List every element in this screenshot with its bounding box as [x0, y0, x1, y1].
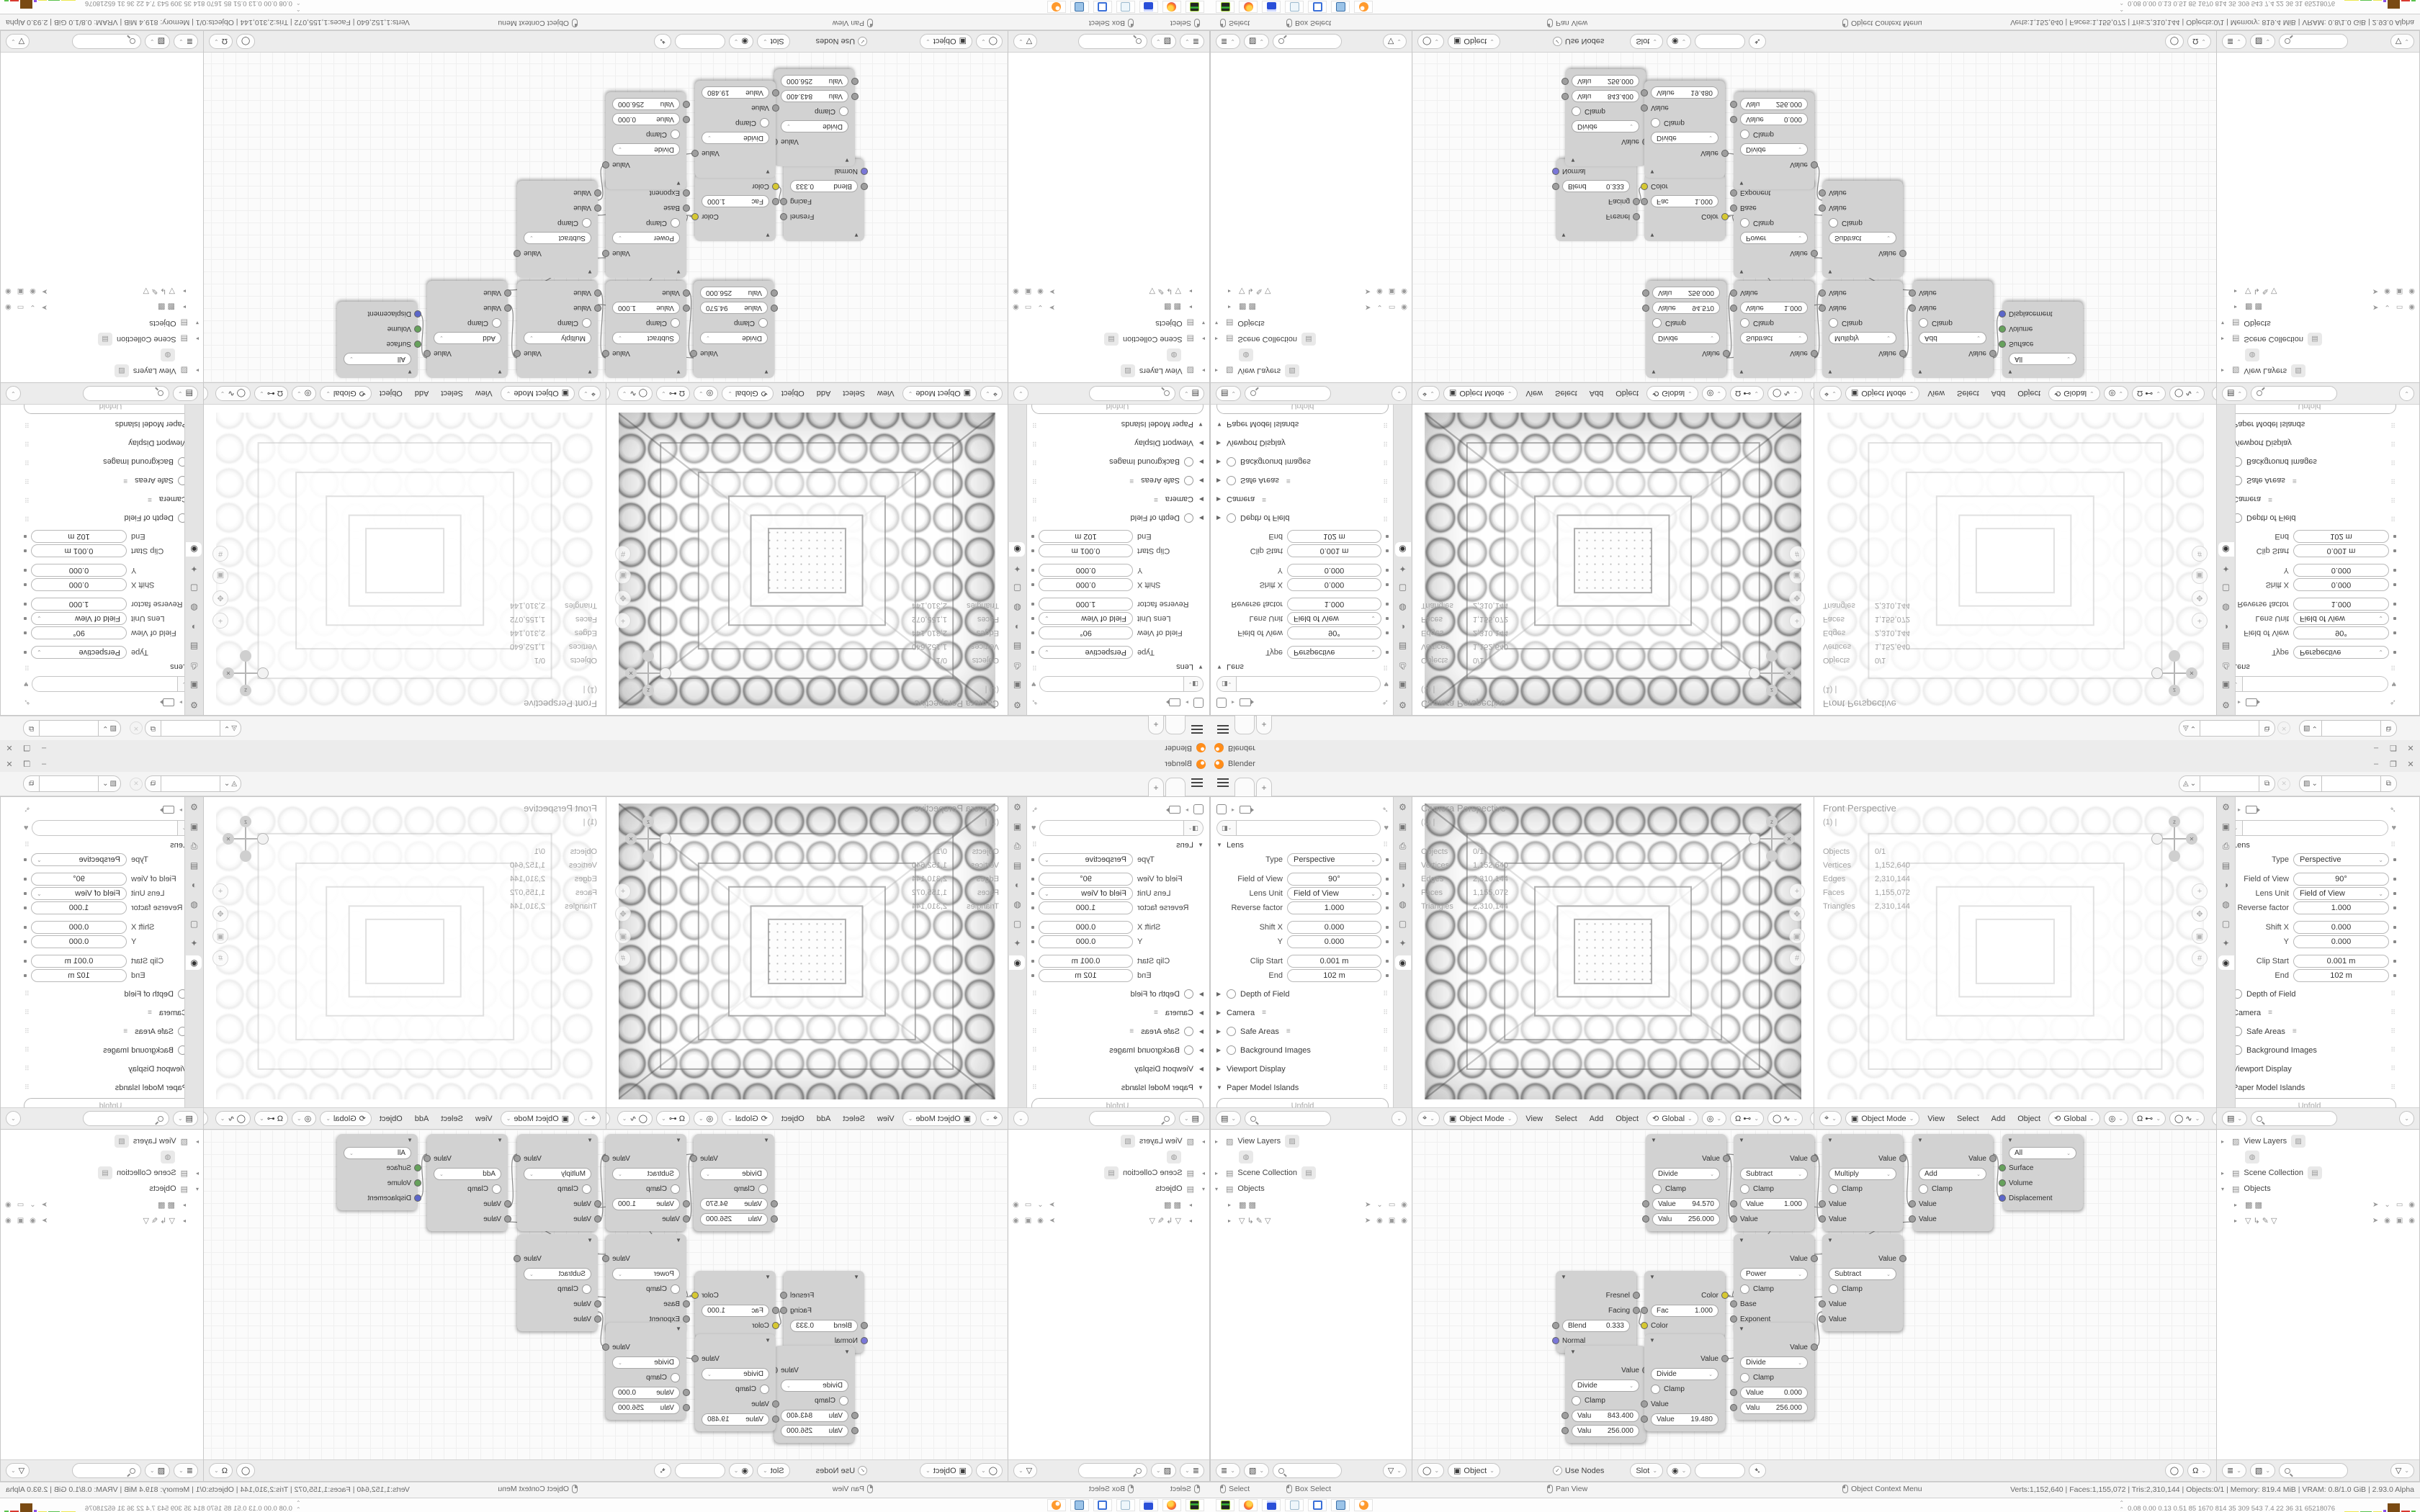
- camera-name-field[interactable]: [1039, 820, 1183, 836]
- proportional-icon[interactable]: ◯: [2165, 1463, 2184, 1478]
- pivot-dropdown[interactable]: ◎⌄: [292, 1111, 316, 1126]
- gizmo-z-axis[interactable]: z: [1766, 685, 1778, 696]
- restriction-toggle-icon[interactable]: ◉: [2408, 1217, 2415, 1225]
- node-value-field[interactable]: Value94.570: [1652, 1198, 1720, 1210]
- shader-type-dropdown[interactable]: ▣ Object⌄: [1448, 1463, 1500, 1478]
- prop-value-field[interactable]: 0.000: [1287, 578, 1381, 591]
- gizmo-x-axis[interactable]: [257, 667, 269, 679]
- node-math-divide-0[interactable]: ▼ValueDivide⌄ClampValue0.000Valu256.000: [1734, 92, 1814, 189]
- properties-tab-world[interactable]: ◍: [1010, 897, 1026, 912]
- properties-tab-data[interactable]: ✦: [2218, 562, 2234, 576]
- minimize-button[interactable]: –: [2371, 744, 2381, 753]
- panel-lens[interactable]: ▼Lens⠿: [24, 660, 197, 675]
- restriction-toggle-icon[interactable]: ⌄: [30, 304, 35, 312]
- node-math-add[interactable]: ▼ValueAdd⌄ClampValueValue: [1912, 281, 1993, 378]
- node-operation-dropdown[interactable]: Add⌄: [434, 332, 501, 344]
- panel-checkbox[interactable]: [1184, 513, 1193, 523]
- properties-tab-world[interactable]: ◍: [2218, 600, 2234, 615]
- node-canvas[interactable]: ▼ValueDivide⌄ClampValue94.570Valu256.000…: [1412, 1130, 2216, 1459]
- panel-background-images[interactable]: ▶Background Images⠿: [1216, 454, 1389, 469]
- proportional-icon[interactable]: ◯: [2165, 34, 2184, 49]
- panel-depth-of-field[interactable]: ▶Depth of Field⠿: [24, 510, 197, 526]
- view-layer-selector[interactable]: ▨⌄ ⧉: [2299, 775, 2397, 792]
- properties-tab-scene[interactable]: ◑: [187, 878, 202, 892]
- menu-select[interactable]: Select: [1953, 390, 1984, 398]
- restriction-toggle-icon[interactable]: ◉: [1013, 304, 1019, 312]
- animate-dot-icon[interactable]: [24, 892, 27, 895]
- node-math-divide-843[interactable]: ▼ValueDivide⌄ClampValu843.400Valu256.000: [1565, 1346, 1646, 1443]
- editor-type-icon[interactable]: ◯⌄: [976, 1463, 1003, 1478]
- animate-dot-icon[interactable]: [1031, 940, 1034, 943]
- outliner-row[interactable]: ▸▤Scene Collection▤: [2221, 331, 2415, 347]
- taskbar-icon-window[interactable]: [1308, 1499, 1327, 1511]
- orientation-dropdown[interactable]: ⟲ Global⌄: [1646, 1111, 1698, 1126]
- gizmo-z-axis[interactable]: z: [642, 685, 654, 696]
- menu-add[interactable]: Add: [411, 390, 434, 398]
- outliner-icon-button[interactable]: ▨: [1285, 364, 1299, 377]
- menu-hamburger-icon[interactable]: [1217, 778, 1229, 787]
- restriction-toggle-icon[interactable]: ➤: [2372, 288, 2378, 296]
- search-input[interactable]: [1078, 1463, 1147, 1478]
- animate-dot-icon[interactable]: [1031, 549, 1034, 552]
- taskbar-icon-notepad[interactable]: [1285, 1, 1304, 13]
- prop-value-field[interactable]: Perspective: [1039, 853, 1133, 866]
- prop-value-field[interactable]: 1.000: [2293, 598, 2389, 611]
- outliner-row[interactable]: ▸▽ ↳ ✎ ▽➤◉▣◉: [5, 1212, 199, 1228]
- node-value-field[interactable]: Value1.000: [1740, 1198, 1808, 1210]
- animate-dot-icon[interactable]: [24, 617, 27, 620]
- clamp-checkbox[interactable]: [582, 218, 591, 228]
- animate-dot-icon[interactable]: [1386, 974, 1389, 977]
- prop-value-field[interactable]: 90°: [2293, 873, 2389, 886]
- viewport-front[interactable]: Front Perspective (1) | Objects0/1Vertic…: [203, 382, 606, 716]
- node-value-field[interactable]: Value0.000: [612, 113, 680, 125]
- prop-value-field[interactable]: 0.001 m: [2293, 544, 2389, 557]
- animate-dot-icon[interactable]: [1031, 569, 1034, 572]
- node-operation-dropdown[interactable]: Divide⌄: [612, 1356, 680, 1369]
- clamp-checkbox[interactable]: [1829, 1284, 1838, 1294]
- node-operation-dropdown[interactable]: Divide⌄: [1740, 143, 1808, 156]
- orientation-dropdown[interactable]: ⟲ Global⌄: [2048, 386, 2100, 401]
- restriction-toggle-icon[interactable]: ▣: [1025, 288, 1031, 296]
- outliner-row[interactable]: ▸▨View Layers▨: [1215, 1133, 1407, 1149]
- animate-dot-icon[interactable]: [2393, 906, 2396, 909]
- node-operation-dropdown[interactable]: Divide⌄: [781, 1380, 848, 1392]
- proportional-edit-icon[interactable]: ◯ ∿⌄: [2169, 386, 2205, 401]
- node-operation-dropdown[interactable]: Add⌄: [1919, 332, 1986, 344]
- camera-data-icon[interactable]: [1169, 806, 1180, 814]
- copy-view-layer-icon[interactable]: ⧉: [2381, 775, 2397, 792]
- restriction-toggle-icon[interactable]: ◉: [1401, 1201, 1407, 1209]
- restriction-toggle-icon[interactable]: ➤: [42, 1217, 48, 1225]
- node-mix-color[interactable]: ▼ColorFac1.000Color: [695, 1271, 776, 1338]
- proportional-edit-icon[interactable]: ◯ ∿⌄: [617, 1111, 653, 1126]
- outliner-display-mode[interactable]: ≣⌄: [2222, 1463, 2246, 1478]
- prop-value-field[interactable]: 90°: [31, 873, 127, 886]
- material-icon[interactable]: ◉⌄: [1667, 34, 1691, 49]
- filter-funnel-icon[interactable]: ▽⌄: [2390, 34, 2414, 49]
- taskbar-icon-window[interactable]: [1093, 1499, 1112, 1511]
- clamp-checkbox[interactable]: [582, 1184, 591, 1194]
- node-math-subtract-2[interactable]: ▼ValueSubtract⌄ClampValueValue: [1822, 181, 1903, 278]
- node-math-divide-0[interactable]: ▼ValueDivide⌄ClampValue0.000Valu256.000: [606, 92, 686, 189]
- gizmo-x-neg-axis[interactable]: ✕: [2186, 667, 2197, 679]
- properties-tab-data[interactable]: ✦: [187, 936, 202, 950]
- node-math-divide-1[interactable]: ▼ValueDivide⌄ClampValue94.570Valu256.000: [1646, 281, 1726, 378]
- viewport-nav-buttons[interactable]: +✥ ▣#: [212, 546, 228, 629]
- use-nodes-toggle[interactable]: ✓Use Nodes: [1553, 1466, 1604, 1475]
- animate-dot-icon[interactable]: [24, 651, 27, 654]
- restriction-toggle-icon[interactable]: ▣: [2396, 288, 2403, 296]
- panel-safe-areas[interactable]: ▶Safe Areas≡⠿: [1216, 1024, 1389, 1039]
- outliner-icon-button[interactable]: ◍: [1239, 1151, 1253, 1164]
- menu-object[interactable]: Object: [2013, 1115, 2045, 1123]
- restriction-toggle-icon[interactable]: ◉: [1401, 1217, 1407, 1225]
- properties-tab-render[interactable]: ▣: [2218, 678, 2234, 693]
- prop-value-field[interactable]: Field of View: [1287, 887, 1381, 900]
- material-icon[interactable]: ◉⌄: [729, 1463, 753, 1478]
- clamp-checkbox[interactable]: [671, 1284, 680, 1294]
- prop-value-field[interactable]: Field of View: [2293, 612, 2389, 625]
- editor-type-icon[interactable]: ⌖⌄: [1417, 386, 1440, 401]
- restriction-toggle-icon[interactable]: ◉: [1013, 1217, 1019, 1225]
- gizmo-z-neg-axis[interactable]: [642, 650, 654, 662]
- outliner-display-mode[interactable]: ≣⌄: [1180, 1463, 1204, 1478]
- camera-browse-icon[interactable]: ◨ ⌄: [1216, 820, 1237, 836]
- node-operation-dropdown[interactable]: Divide⌄: [1740, 1356, 1808, 1369]
- node-operation-dropdown[interactable]: Divide⌄: [1572, 120, 1639, 132]
- properties-tab-tool[interactable]: ⚙: [1010, 698, 1026, 712]
- node-value-field[interactable]: Value94.570: [1652, 302, 1720, 314]
- node-math-add[interactable]: ▼ValueAdd⌄ClampValueValue: [427, 1134, 508, 1231]
- clamp-checkbox[interactable]: [671, 1184, 680, 1194]
- gizmo-x-neg-axis[interactable]: ✕: [1783, 667, 1795, 679]
- editor-type-icon[interactable]: ⌖⌄: [980, 1111, 1003, 1126]
- editor-type-icon[interactable]: ▤⌄: [1179, 386, 1204, 401]
- gizmo-x-neg-axis[interactable]: ✕: [2186, 833, 2197, 845]
- node-math-divide-843[interactable]: ▼ValueDivide⌄ClampValu843.400Valu256.000: [1565, 69, 1646, 166]
- node-math-multiply[interactable]: ▼ValueMultiply⌄ClampValueValue: [1822, 281, 1903, 378]
- properties-tab-render[interactable]: ▣: [1395, 819, 1411, 834]
- restriction-toggle-icon[interactable]: ◉: [30, 288, 36, 296]
- unlink-scene-icon[interactable]: ✕: [130, 722, 143, 735]
- pin-icon[interactable]: ➴: [1382, 805, 1389, 814]
- camera-name-field[interactable]: [1237, 676, 1381, 692]
- menu-object[interactable]: Object: [1611, 390, 1643, 398]
- properties-tab-tool[interactable]: ⚙: [1010, 800, 1026, 814]
- properties-tab-world[interactable]: ◍: [1395, 897, 1411, 912]
- animate-dot-icon[interactable]: [2393, 878, 2396, 881]
- prop-value-field[interactable]: Perspective: [1287, 646, 1381, 659]
- animate-dot-icon[interactable]: [2393, 603, 2396, 606]
- restriction-toggle-icon[interactable]: ⌄: [30, 1201, 35, 1209]
- panel-safe-areas[interactable]: ▶Safe Areas≡⠿: [2223, 473, 2396, 488]
- snap-magnet-icon[interactable]: Ω⌄: [2187, 34, 2211, 49]
- minimize-button[interactable]: –: [39, 760, 49, 769]
- restriction-toggle-icon[interactable]: ⌄: [1037, 304, 1043, 312]
- search-input[interactable]: [2279, 1463, 2348, 1478]
- prop-value-field[interactable]: Field of View: [31, 887, 127, 900]
- clamp-checkbox[interactable]: [1740, 218, 1749, 228]
- panel-checkbox[interactable]: [1227, 457, 1236, 467]
- proportional-edit-icon[interactable]: ◯ ∿⌄: [215, 1111, 251, 1126]
- restore-button[interactable]: ❐: [22, 744, 32, 753]
- outliner-filter-id[interactable]: ▧⌄: [2250, 34, 2275, 49]
- orientation-dropdown[interactable]: ⟲ Global⌄: [320, 386, 372, 401]
- node-material-output[interactable]: ▼All⌄SurfaceVolumeDisplacement: [337, 302, 418, 378]
- restriction-toggle-icon[interactable]: ▭: [2396, 304, 2403, 312]
- unfold-button[interactable]: Unfold: [2223, 1098, 2396, 1107]
- close-button[interactable]: ✕: [4, 760, 14, 769]
- pivot-dropdown[interactable]: ◎⌄: [292, 386, 316, 401]
- material-icon[interactable]: ◉⌄: [729, 34, 753, 49]
- menu-view[interactable]: View: [471, 390, 497, 398]
- navigation-gizmo[interactable]: z✕: [2151, 816, 2197, 862]
- outliner-row[interactable]: ▸▨View Layers▨: [1013, 363, 1205, 379]
- outliner-icon-button[interactable]: ▨: [115, 1135, 129, 1148]
- camera-name-field[interactable]: [32, 676, 177, 692]
- minimize-button[interactable]: –: [2371, 760, 2381, 769]
- animate-dot-icon[interactable]: [1386, 906, 1389, 909]
- copy-scene-icon[interactable]: ⧉: [2259, 775, 2275, 792]
- node-value-field[interactable]: Value1.000: [612, 302, 680, 314]
- restriction-toggle-icon[interactable]: ▭: [2396, 1201, 2403, 1209]
- prop-value-field[interactable]: 90°: [1039, 626, 1133, 639]
- close-button[interactable]: ✕: [2406, 744, 2416, 753]
- outliner-row[interactable]: ▸▤Scene Collection▤: [1013, 1165, 1205, 1181]
- animate-dot-icon[interactable]: [24, 878, 27, 881]
- prop-value-field[interactable]: 0.001 m: [31, 955, 127, 968]
- viewport-nav-buttons[interactable]: +✥ ▣#: [212, 883, 228, 966]
- outliner-row[interactable]: ▸▽ ↳ ✎ ▽➤◉▣◉: [1013, 284, 1205, 300]
- gizmo-x-axis[interactable]: [257, 833, 269, 845]
- panel-paper-model-islands[interactable]: ▼Paper Model Islands⠿: [1031, 417, 1204, 432]
- panel-viewport-display[interactable]: ▶Viewport Display⠿: [1031, 436, 1204, 451]
- node-math-subtract-1[interactable]: ▼ValueSubtract⌄ClampValue1.000Value: [1734, 1134, 1814, 1231]
- properties-tab-view-layer[interactable]: ▤: [1010, 858, 1026, 873]
- outliner-icon-button[interactable]: ▨: [1121, 1135, 1135, 1148]
- unfold-button[interactable]: Unfold: [2223, 405, 2396, 414]
- outliner-row[interactable]: ▸▽ ↳ ✎ ▽➤◉▣◉: [1013, 1212, 1205, 1228]
- gizmo-z-neg-axis[interactable]: [1766, 650, 1778, 662]
- prop-value-field[interactable]: 0.001 m: [1287, 955, 1381, 968]
- viewport-front[interactable]: Front Perspective (1) | Objects0/1Vertic…: [1814, 796, 2217, 1130]
- node-material-output[interactable]: ▼All⌄SurfaceVolumeDisplacement: [337, 1134, 418, 1210]
- add-workspace-tab[interactable]: +: [1256, 778, 1272, 796]
- overlays-icon[interactable]: ◒⌄: [204, 386, 208, 401]
- material-id-field[interactable]: [1695, 1463, 1745, 1478]
- animate-dot-icon[interactable]: [24, 569, 27, 572]
- camera-browse-icon[interactable]: ◨ ⌄: [1183, 676, 1204, 692]
- pivot-dropdown[interactable]: ◎⌄: [1702, 386, 1726, 401]
- scene-name-field[interactable]: [2200, 720, 2259, 737]
- menu-add[interactable]: Add: [411, 1115, 434, 1123]
- gizmo-z-axis[interactable]: z: [1766, 816, 1778, 827]
- properties-tab-render[interactable]: ▣: [2218, 819, 2234, 834]
- outliner-icon-button[interactable]: ▤: [98, 333, 112, 346]
- panel-camera[interactable]: ▶Camera≡⠿: [2223, 1005, 2396, 1020]
- prop-value-field[interactable]: 102 m: [1287, 969, 1381, 982]
- node-value-field[interactable]: Valu843.400: [1572, 1410, 1639, 1422]
- animate-dot-icon[interactable]: [2393, 617, 2396, 620]
- animate-dot-icon[interactable]: [24, 583, 27, 586]
- panel-camera[interactable]: ▶Camera≡⠿: [1031, 1005, 1204, 1020]
- node-operation-dropdown[interactable]: Power⌄: [612, 1268, 680, 1280]
- taskbar-icon-file-manager[interactable]: [1216, 1, 1234, 13]
- prop-value-field[interactable]: 0.000: [1287, 564, 1381, 577]
- menu-hamburger-icon[interactable]: [1217, 725, 1229, 734]
- editor-type-icon[interactable]: ⌖⌄: [980, 386, 1003, 401]
- panel-viewport-display[interactable]: ▶Viewport Display⠿: [2223, 1061, 2396, 1076]
- animate-dot-icon[interactable]: [1386, 651, 1389, 654]
- mode-dropdown[interactable]: ▣ Object Mode⌄: [501, 1111, 575, 1126]
- node-value-field[interactable]: Valu843.400: [1572, 90, 1639, 102]
- restriction-toggle-icon[interactable]: ▣: [17, 288, 24, 296]
- menu-view[interactable]: View: [1923, 390, 1949, 398]
- node-value-field[interactable]: Valu256.000: [781, 75, 848, 87]
- properties-tab-render[interactable]: ▣: [1395, 678, 1411, 693]
- node-math-divide-843[interactable]: ▼ValueDivide⌄ClampValu843.400Valu256.000: [774, 1346, 855, 1443]
- prop-value-field[interactable]: 0.000: [2293, 921, 2389, 934]
- copy-view-layer-icon[interactable]: ⧉: [2381, 720, 2397, 737]
- gizmo-x-axis[interactable]: [2151, 667, 2163, 679]
- viewport-nav-buttons[interactable]: +✥ ▣#: [615, 546, 631, 629]
- mode-dropdown[interactable]: ▣ Object Mode⌄: [1845, 386, 1919, 401]
- menu-add[interactable]: Add: [1585, 1115, 1608, 1123]
- node-math-multiply[interactable]: ▼ValueMultiply⌄ClampValueValue: [517, 1134, 598, 1231]
- restriction-toggle-icon[interactable]: ◉: [2408, 304, 2415, 312]
- restriction-toggle-icon[interactable]: ➤: [1365, 1217, 1371, 1225]
- outliner-row[interactable]: ▾▤Objects: [1013, 315, 1205, 331]
- outliner-row[interactable]: ▸▨View Layers▨: [1215, 363, 1407, 379]
- properties-tab-object[interactable]: ▢: [1395, 581, 1411, 595]
- clamp-checkbox[interactable]: [582, 1284, 591, 1294]
- pin-icon[interactable]: ➴: [654, 1463, 671, 1478]
- prop-value-field[interactable]: Field of View: [1287, 612, 1381, 625]
- taskbar-icon-file-manager[interactable]: [1186, 1, 1204, 13]
- editor-type-icon[interactable]: ▤⌄: [2222, 386, 2247, 401]
- prop-value-field[interactable]: 90°: [1287, 873, 1381, 886]
- outliner-icon-button[interactable]: ▨: [2291, 364, 2305, 377]
- properties-tab-output[interactable]: ⎙: [187, 659, 202, 673]
- panel-background-images[interactable]: ▶Background Images⠿: [24, 1043, 197, 1058]
- camera-data-icon[interactable]: [2246, 806, 2257, 814]
- node-operation-dropdown[interactable]: Divide⌄: [1652, 1168, 1720, 1180]
- navigation-gizmo[interactable]: z✕: [625, 650, 671, 696]
- proportional-edit-icon[interactable]: ◯ ∿⌄: [1767, 386, 1803, 401]
- filter-funnel-icon[interactable]: ▽⌄: [6, 34, 30, 49]
- restriction-toggle-icon[interactable]: ▭: [1025, 304, 1031, 312]
- unfold-button[interactable]: Unfold: [1031, 1098, 1204, 1107]
- animate-dot-icon[interactable]: [1031, 583, 1034, 586]
- prop-value-field[interactable]: Field of View: [2293, 887, 2389, 900]
- restriction-toggle-icon[interactable]: ◉: [5, 1217, 12, 1225]
- workspace-tab[interactable]: [1165, 778, 1186, 796]
- outliner-row[interactable]: ▸▩ ▩➤⌄▭◉: [2221, 1197, 2415, 1212]
- node-operation-dropdown[interactable]: Subtract⌄: [612, 332, 680, 344]
- animate-dot-icon[interactable]: [1031, 926, 1034, 929]
- close-button[interactable]: ✕: [4, 744, 14, 753]
- restriction-toggle-icon[interactable]: ▣: [1389, 288, 1395, 296]
- fake-user-icon[interactable]: ♥: [1031, 680, 1036, 688]
- node-value-field[interactable]: Valu256.000: [700, 287, 768, 299]
- outliner-filter-id[interactable]: ▧⌄: [145, 34, 170, 49]
- node-value-field[interactable]: Value94.570: [700, 1198, 768, 1210]
- outliner-row[interactable]: ▸▨View Layers▨: [2221, 363, 2415, 379]
- prop-value-field[interactable]: 1.000: [1039, 901, 1133, 914]
- restriction-toggle-icon[interactable]: ▣: [17, 1217, 24, 1225]
- view-layer-selector[interactable]: ▨⌄ ⧉: [23, 775, 121, 792]
- proportional-edit-icon[interactable]: ◯ ∿⌄: [2169, 1111, 2205, 1126]
- animate-dot-icon[interactable]: [1386, 960, 1389, 963]
- menu-view[interactable]: View: [471, 1115, 497, 1123]
- menu-add[interactable]: Add: [1987, 1115, 2010, 1123]
- shader-editor[interactable]: ▼ValueDivide⌄ClampValue94.570Valu256.000…: [203, 30, 1008, 383]
- clamp-checkbox[interactable]: [839, 107, 848, 116]
- properties-tab-tool[interactable]: ⚙: [2218, 800, 2234, 814]
- prop-value-field[interactable]: 1.000: [31, 598, 127, 611]
- options-dropdown[interactable]: ⌄: [1391, 1111, 1407, 1126]
- outliner-row[interactable]: ▸▨View Layers▨: [2221, 1133, 2415, 1149]
- panel-viewport-display[interactable]: ▶Viewport Display⠿: [1031, 1061, 1204, 1076]
- menu-view[interactable]: View: [1521, 390, 1547, 398]
- pin-icon[interactable]: ➴: [1031, 805, 1038, 814]
- snap-magnet-icon[interactable]: Ω⌄: [209, 1463, 233, 1478]
- taskbar-icon-blender[interactable]: [1047, 1499, 1066, 1511]
- gizmo-x-axis[interactable]: [660, 833, 671, 845]
- clamp-checkbox[interactable]: [1651, 118, 1660, 127]
- restriction-toggle-icon[interactable]: ▣: [1389, 1217, 1395, 1225]
- outliner-icon-button[interactable]: ◍: [1167, 1151, 1181, 1164]
- taskbar-icon-firefox[interactable]: [1239, 1499, 1258, 1511]
- pivot-dropdown[interactable]: ◎⌄: [2104, 1111, 2128, 1126]
- outliner-display-mode[interactable]: ≣⌄: [174, 1463, 198, 1478]
- outliner-icon-button[interactable]: ▤: [1301, 1166, 1316, 1179]
- copy-scene-icon[interactable]: ⧉: [145, 720, 161, 737]
- panel-lens[interactable]: ▼Lens⠿: [2223, 837, 2396, 852]
- panel-lens[interactable]: ▼Lens⠿: [1216, 837, 1389, 852]
- node-math-divide-1[interactable]: ▼ValueDivide⌄ClampValue94.570Valu256.000: [1646, 1134, 1726, 1231]
- viewport-nav-buttons[interactable]: +✥ ▣#: [1789, 546, 1805, 629]
- restriction-toggle-icon[interactable]: ◉: [1037, 1217, 1044, 1225]
- animate-dot-icon[interactable]: [2393, 535, 2396, 538]
- options-dropdown[interactable]: ⌄: [2399, 1111, 2414, 1126]
- properties-tab-camera-data[interactable]: ◉: [1395, 955, 1411, 970]
- animate-dot-icon[interactable]: [1031, 603, 1034, 606]
- properties-tab-scene[interactable]: ◑: [1395, 878, 1411, 892]
- scene-selector[interactable]: ◬⌄ ⧉ ✕: [2179, 775, 2290, 792]
- panel-viewport-display[interactable]: ▶Viewport Display⠿: [24, 1061, 197, 1076]
- menu-object[interactable]: Object: [375, 1115, 407, 1123]
- prop-value-field[interactable]: 1.000: [31, 901, 127, 914]
- panel-background-images[interactable]: ▶Background Images⠿: [2223, 454, 2396, 469]
- panel-paper-model-islands[interactable]: ▼Paper Model Islands⠿: [2223, 417, 2396, 432]
- shader-editor[interactable]: ▼ValueDivide⌄ClampValue94.570Valu256.000…: [1412, 1129, 2217, 1482]
- node-math-subtract-2[interactable]: ▼ValueSubtract⌄ClampValueValue: [1822, 1234, 1903, 1331]
- node-operation-dropdown[interactable]: Power⌄: [612, 232, 680, 244]
- fake-user-icon[interactable]: ♥: [1031, 824, 1036, 832]
- clamp-checkbox[interactable]: [758, 1184, 768, 1194]
- node-value-field[interactable]: Valu256.000: [781, 1425, 848, 1437]
- restriction-toggle-icon[interactable]: ◉: [1013, 1201, 1019, 1209]
- search-input[interactable]: [1078, 34, 1147, 49]
- panel-viewport-display[interactable]: ▶Viewport Display⠿: [1216, 436, 1389, 451]
- restriction-toggle-icon[interactable]: ⌄: [1037, 1201, 1043, 1209]
- node-material-output[interactable]: ▼All⌄SurfaceVolumeDisplacement: [2002, 1134, 2083, 1210]
- snap-magnet-icon[interactable]: Ω ⊷⌄: [2132, 1111, 2166, 1126]
- overlays-icon[interactable]: ◒⌄: [204, 1111, 208, 1126]
- node-value-field[interactable]: Blend0.333: [790, 1320, 858, 1332]
